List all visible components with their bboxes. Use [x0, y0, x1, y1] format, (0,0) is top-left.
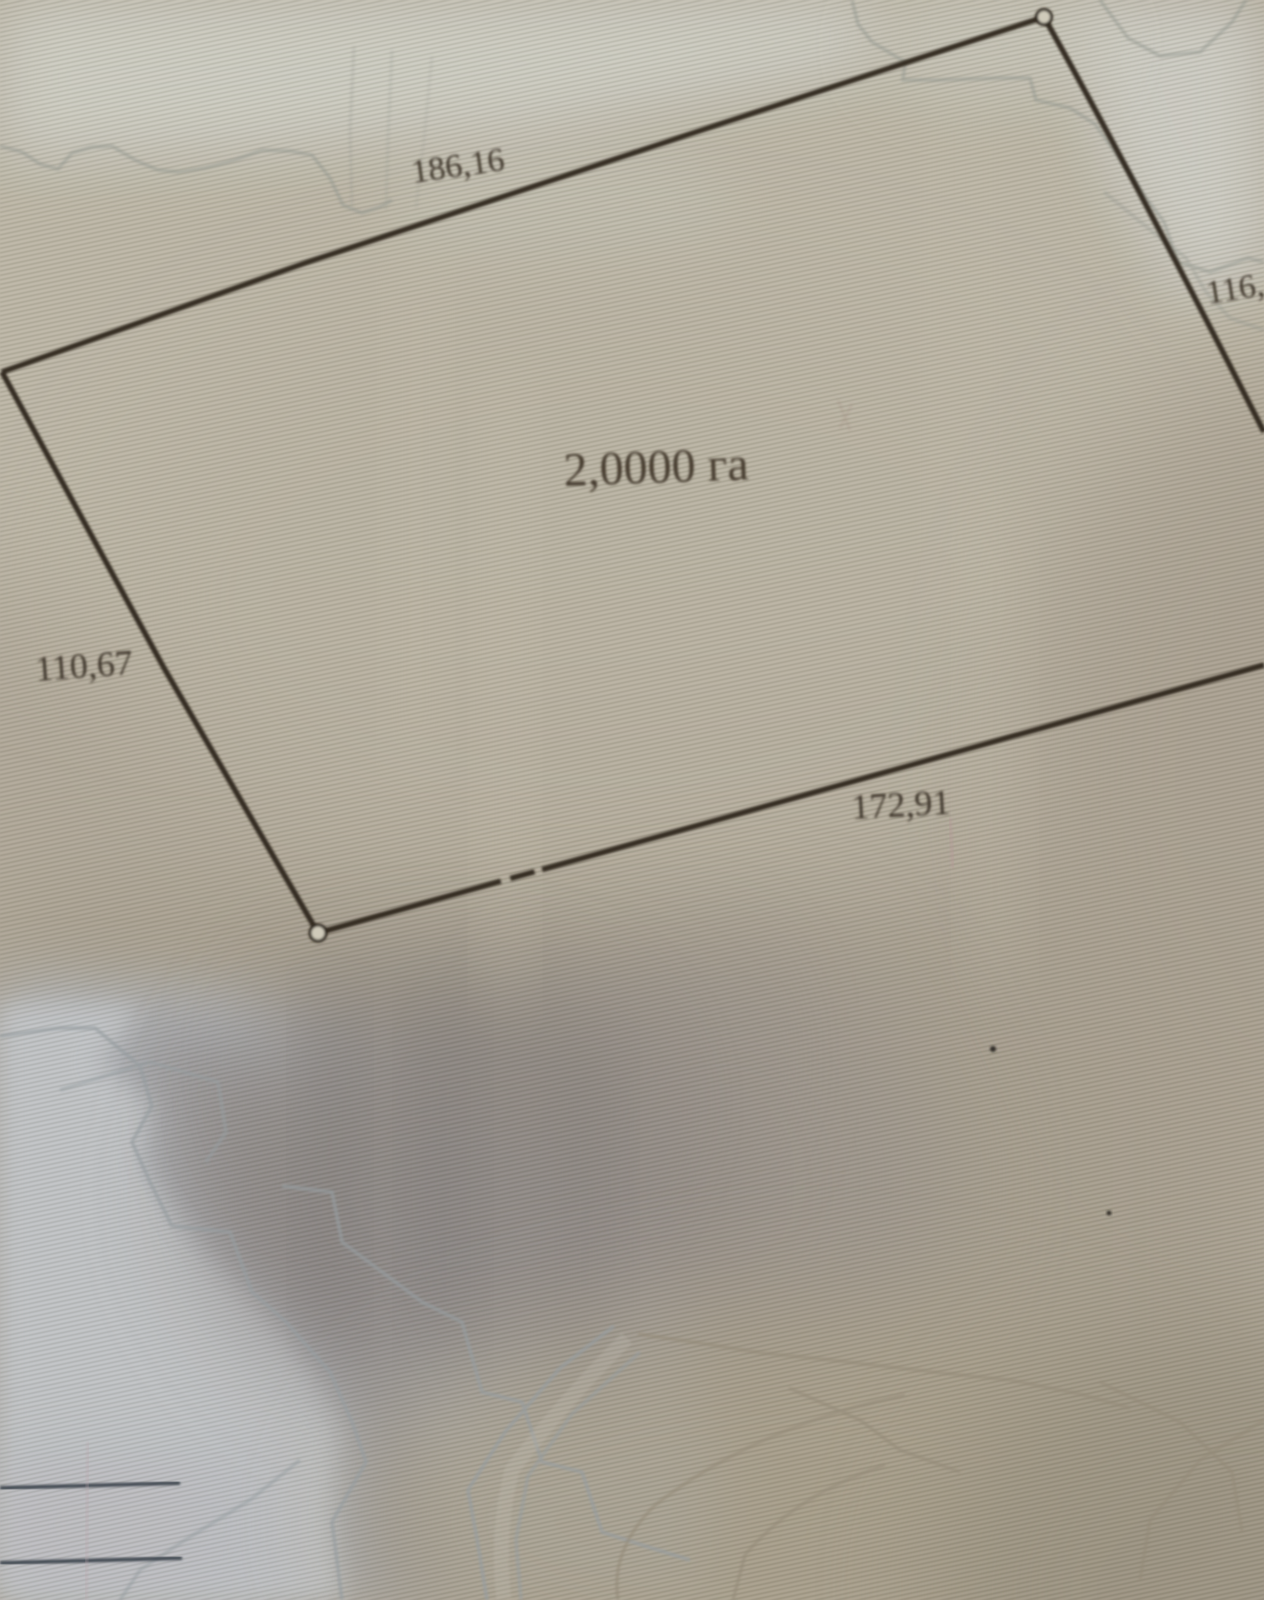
svg-text:2,0000 га: 2,0000 га — [563, 437, 750, 496]
svg-text:110,67: 110,67 — [34, 642, 134, 689]
svg-text:172,91: 172,91 — [850, 782, 951, 827]
